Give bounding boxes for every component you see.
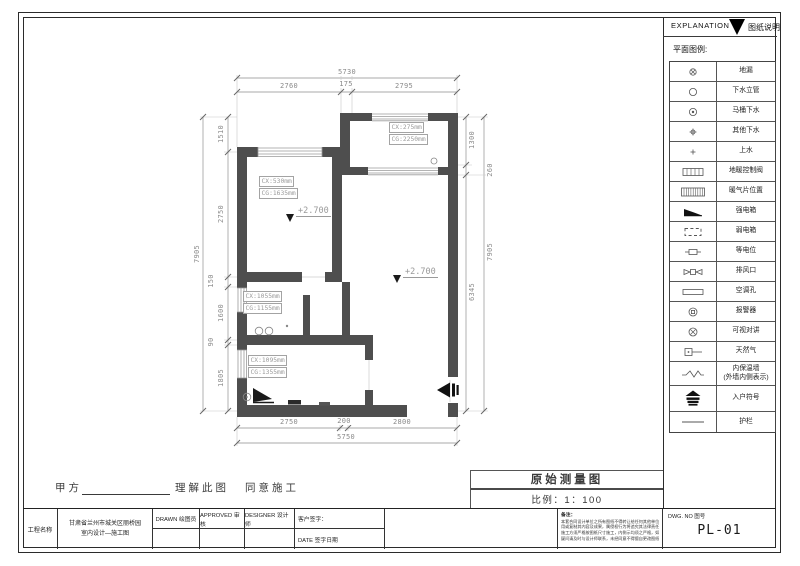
radiator-icon — [670, 182, 717, 201]
drawing-title-box: 原始测量图 比例：1：100 — [470, 470, 663, 508]
title-block: 工程名称 甘肃省兰州市城关区丽桥园 室内设计—施工图 DRAWN 绘图员 APP… — [23, 508, 776, 549]
floor-drain-icon — [670, 62, 717, 81]
legend-label: 空调孔 — [717, 282, 775, 301]
dwg-no-value: PL-01 — [663, 523, 776, 538]
drawn-value — [153, 529, 199, 549]
ac-hole-icon — [670, 282, 717, 301]
basin-icon — [255, 327, 263, 335]
legend-row: 强电箱 — [670, 202, 775, 222]
legend-label: 内保温墙(外墙内侧表示) — [717, 362, 775, 385]
legend-label: 护栏 — [717, 412, 775, 432]
drain-point-icon — [286, 325, 288, 327]
power-box-icon — [253, 388, 272, 402]
power-box-icon — [670, 202, 717, 221]
legend-subtitle: 平面图例: — [673, 44, 707, 55]
legend-label: 强电箱 — [717, 202, 775, 221]
project-label-cell: 工程名称 — [23, 509, 58, 549]
exhaust-icon — [670, 262, 717, 281]
date-label: DATE 签字日期 — [295, 529, 384, 549]
legend-title-en: EXPLANATION — [671, 21, 730, 30]
insulation-icon — [670, 362, 717, 385]
legend-row: 下水立管 — [670, 82, 775, 102]
understand-label: 理解此图 — [175, 480, 229, 495]
drain-icon — [431, 158, 437, 164]
legend-label: 暖气片位置 — [717, 182, 775, 201]
approved-label: APPROVED 审核 — [200, 509, 244, 529]
drain-riser-icon — [670, 82, 717, 101]
designer-cell: DESIGNER 设计师 — [245, 509, 295, 549]
legend-label: 上水 — [717, 142, 775, 161]
legend-row: 天然气 — [670, 342, 775, 362]
legend-row: 入户符号 — [670, 386, 775, 412]
rail-icon — [670, 412, 717, 432]
notes-cell: 备注： 本套合同设计单位之所有图纸不得转让给任何其他单位使用或复制其内容及成果，… — [558, 509, 663, 549]
project-name-cell: 甘肃省兰州市城关区丽桥园 室内设计—施工图 — [58, 509, 153, 549]
drawing-title: 原始测量图 — [471, 471, 663, 487]
dwg-no-label: DWG. NO 图号 — [668, 512, 705, 520]
legend-row: 地暖控制阀 — [670, 162, 775, 182]
legend-row: 排风口 — [670, 262, 775, 282]
equipment-mark — [288, 400, 301, 405]
toilet-drain-icon — [670, 102, 717, 121]
legend-row: 其他下水 — [670, 122, 775, 142]
water-supply-icon — [670, 142, 717, 161]
gas-icon — [670, 342, 717, 361]
designer-value — [245, 529, 294, 549]
drawn-cell: DRAWN 绘图员 — [153, 509, 200, 549]
basin-icon — [265, 327, 273, 335]
empty-cell — [385, 509, 558, 549]
legend-label: 地漏 — [717, 62, 775, 81]
legend-row: 地漏 — [670, 62, 775, 82]
legend-label: 弱电箱 — [717, 222, 775, 241]
legend-header-rule — [663, 36, 777, 37]
dwg-no-cell: DWG. NO 图号 PL-01 — [663, 509, 776, 549]
project-name-line2: 室内设计—施工图 — [69, 529, 141, 539]
equipment-mark — [319, 402, 330, 406]
walls — [237, 113, 458, 417]
legend-label: 下水立管 — [717, 82, 775, 101]
legend-row: 上水 — [670, 142, 775, 162]
legend-row: 马桶下水 — [670, 102, 775, 122]
approved-cell: APPROVED 审核 — [200, 509, 245, 549]
legend-table: 地漏下水立管马桶下水其他下水上水地暖控制阀暖气片位置强电箱弱电箱等电位排风口空调… — [669, 61, 776, 433]
entry-icon — [670, 386, 717, 411]
legend-row: 内保温墙(外墙内侧表示) — [670, 362, 775, 386]
heating-valve-icon — [670, 162, 717, 181]
legend-row: 等电位 — [670, 242, 775, 262]
notes-body: 本套合同设计单位之所有图纸不得转让给任何其他单位使用或复制其内容及成果，属侵权行… — [561, 519, 659, 542]
legend-title-cn: 图纸说明 — [748, 22, 780, 33]
drawing-sheet: 5730276017527957905151027501501600901805… — [0, 0, 800, 566]
client-sign-cell: 客户签字： DATE 签字日期 — [295, 509, 385, 549]
legend-row: 可视对讲 — [670, 322, 775, 342]
legend-label: 等电位 — [717, 242, 775, 261]
legend-row: 空调孔 — [670, 282, 775, 302]
legend-row: 暖气片位置 — [670, 182, 775, 202]
legend-label: 其他下水 — [717, 122, 775, 141]
legend-label: 马桶下水 — [717, 102, 775, 121]
party-a-label: 甲方 — [55, 480, 82, 495]
legend-row: 报警器 — [670, 302, 775, 322]
drawn-label: DRAWN 绘图员 — [153, 509, 199, 529]
legend-row: 护栏 — [670, 412, 775, 432]
legend-label: 报警器 — [717, 302, 775, 321]
designer-label: DESIGNER 设计师 — [245, 509, 294, 529]
other-drain-icon — [670, 122, 717, 141]
equipotential-icon — [670, 242, 717, 261]
triangle-icon — [729, 19, 745, 35]
legend-label: 排风口 — [717, 262, 775, 281]
legend-label: 天然气 — [717, 342, 775, 361]
entry-arrow-icon — [437, 383, 459, 398]
scale-label: 比例：1：100 — [471, 492, 663, 506]
notes-line: 施工方须严格按图纸尺寸施工，内侧示均须之严格，如有 — [561, 530, 659, 536]
agree-label: 同意施工 — [245, 480, 299, 495]
client-sign-label: 客户签字： — [295, 509, 384, 529]
notes-line: 疑问请及时与设计师联系，未经同意不得擅自更改图纸。 — [561, 536, 659, 542]
approved-value — [200, 529, 244, 549]
intercom-icon — [670, 322, 717, 341]
legend-label: 可视对讲 — [717, 322, 775, 341]
lv-box-icon — [670, 222, 717, 241]
legend-label: 入户符号 — [717, 386, 775, 411]
signature-line — [82, 494, 170, 495]
notes-title: 备注： — [561, 511, 659, 518]
legend-label: 地暖控制阀 — [717, 162, 775, 181]
title-divider — [471, 488, 663, 490]
project-name-line1: 甘肃省兰州市城关区丽桥园 — [69, 519, 141, 529]
legend-row: 弱电箱 — [670, 222, 775, 242]
alarm-icon — [670, 302, 717, 321]
